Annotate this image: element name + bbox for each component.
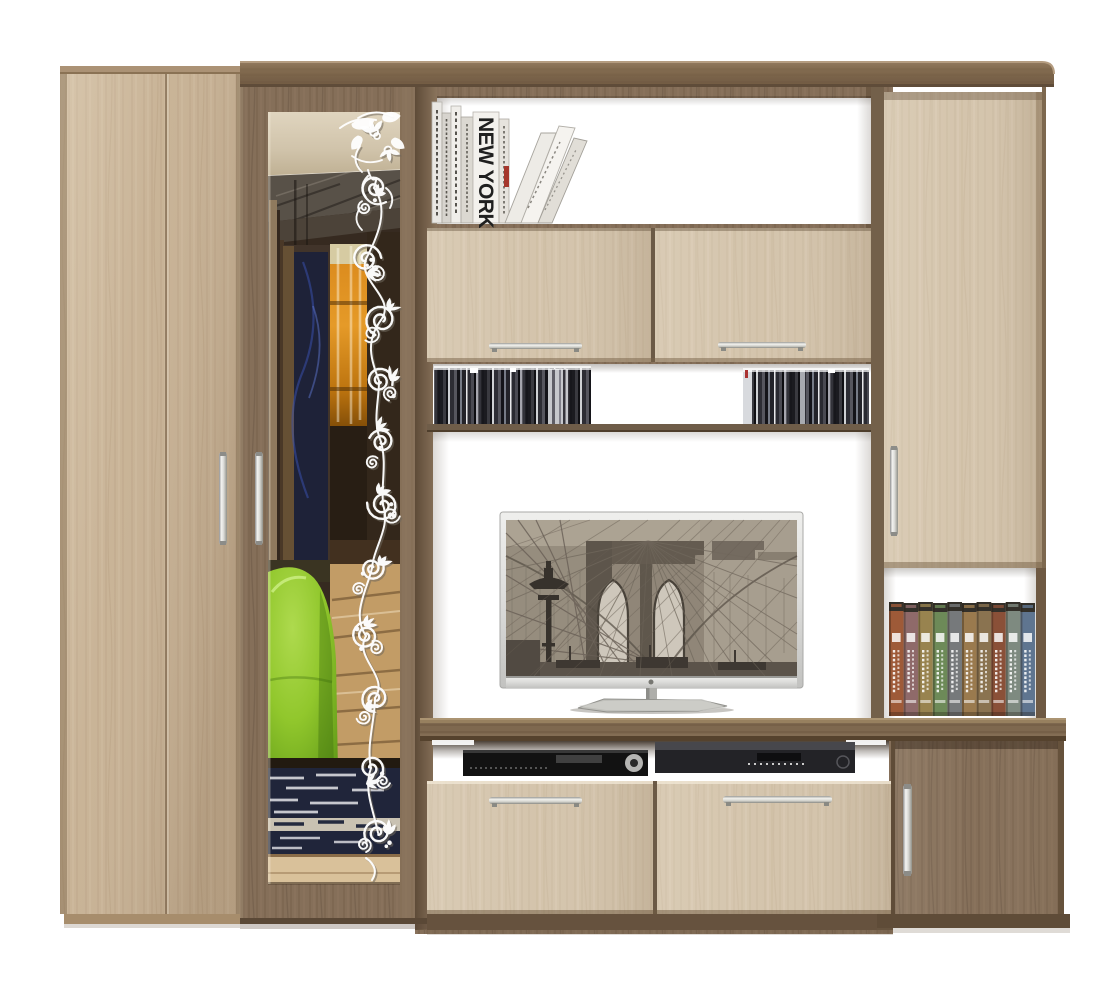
svg-text:NEW YORK: NEW YORK <box>474 117 497 228</box>
